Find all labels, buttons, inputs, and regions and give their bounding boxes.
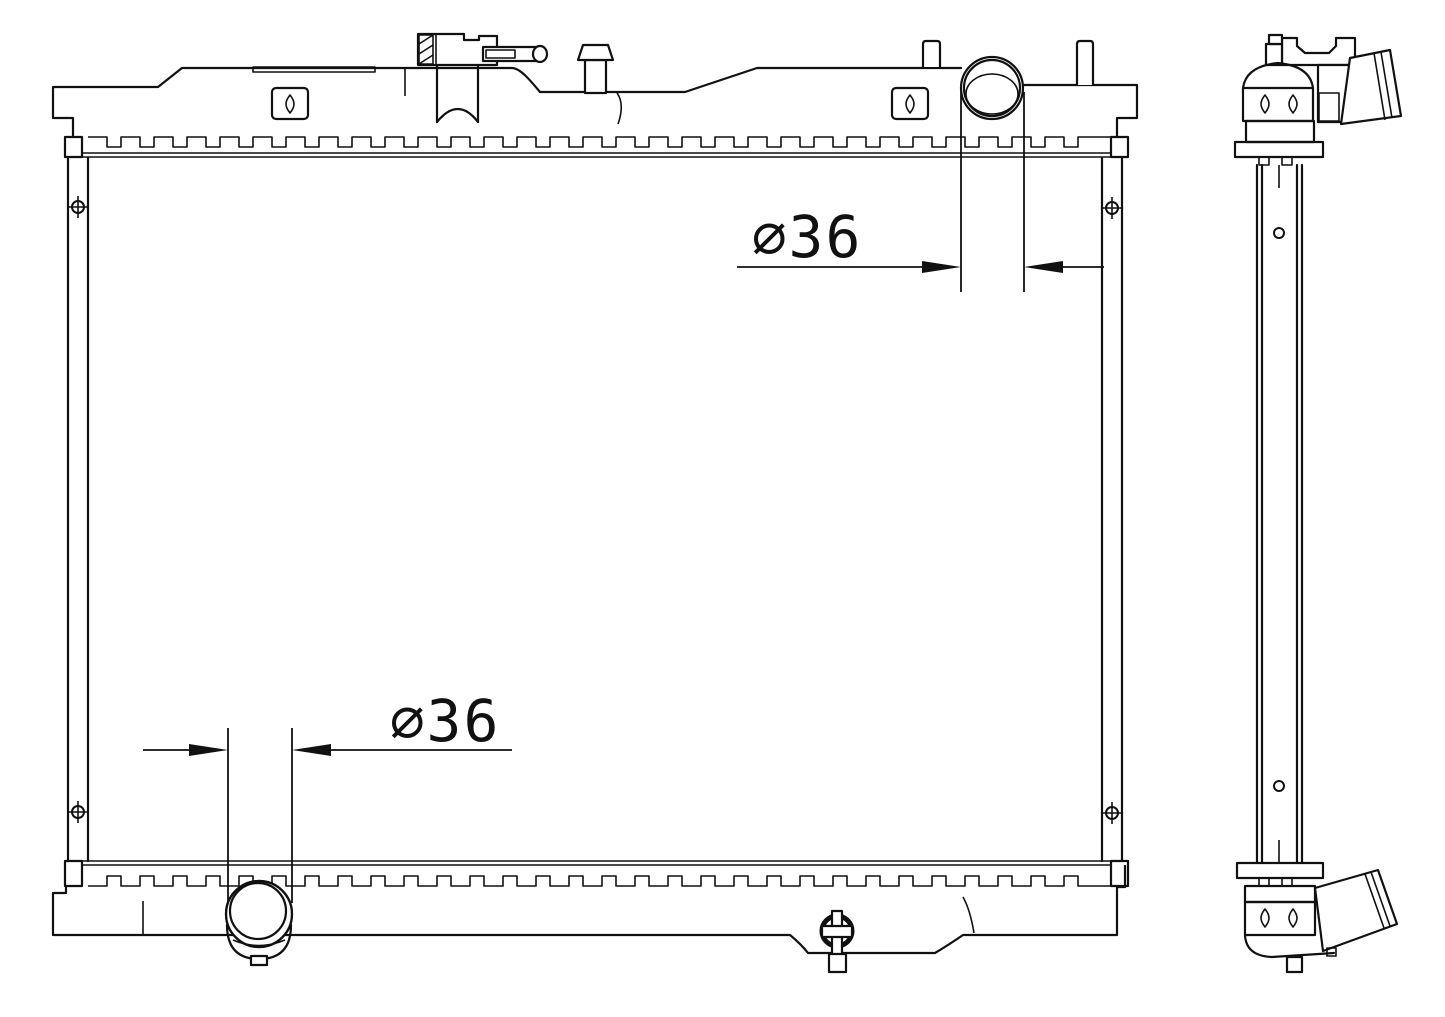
band-end-cap xyxy=(65,861,82,886)
radiator-technical-drawing: ⌀36 ⌀36 xyxy=(0,0,1445,1017)
side-bracket-bottom xyxy=(1245,902,1315,935)
side-bracket-upper xyxy=(1245,886,1315,902)
band-double-line xyxy=(81,861,1112,865)
drain-plug-wing-horizontal xyxy=(822,926,852,937)
vent-stub-cap xyxy=(578,45,613,60)
bottom-tank-curl xyxy=(963,897,974,933)
side-outlet-pipe xyxy=(1315,870,1397,951)
side-channel-left xyxy=(67,158,89,861)
side-bottom-foot xyxy=(1237,863,1323,878)
overflow-tube-end xyxy=(533,46,547,62)
diamond-hole xyxy=(1261,909,1269,927)
dimension-label-bottom: ⌀36 xyxy=(390,687,501,755)
outlet-pipe-opening xyxy=(226,881,292,965)
front-view xyxy=(53,34,1137,972)
side-top-foot xyxy=(1235,142,1323,157)
core-hole-upper xyxy=(1274,228,1284,238)
drain-outlet-stub xyxy=(829,954,846,972)
arrowhead xyxy=(922,261,961,273)
mounting-hole-crosshair xyxy=(1101,197,1123,219)
diamond-hole xyxy=(906,95,914,113)
tank-rib-flick xyxy=(617,93,621,124)
diamond-hole xyxy=(1289,95,1297,113)
overflow-tube xyxy=(483,47,539,61)
top-tab-right xyxy=(1077,41,1093,85)
dimensions: ⌀36 ⌀36 xyxy=(143,92,1104,903)
arrowhead xyxy=(1024,261,1063,273)
extension-lines xyxy=(961,92,1024,292)
vent-stub-neck xyxy=(585,60,606,93)
side-channel-right xyxy=(1101,158,1123,861)
band-end-cap xyxy=(65,137,82,157)
side-core-strip xyxy=(1257,165,1302,863)
side-inlet-pipe xyxy=(1341,50,1401,124)
inlet-pipe-opening xyxy=(961,57,1023,119)
arrowhead xyxy=(292,744,331,756)
side-top-block xyxy=(1266,44,1282,65)
mounting-pad-right xyxy=(892,88,928,119)
arrowhead xyxy=(189,744,228,756)
side-top-serration-wave xyxy=(1246,157,1314,165)
outlet-housing-tab xyxy=(251,956,267,965)
side-bottom-tank xyxy=(1237,863,1397,972)
front-bottom-serration-wave xyxy=(88,876,1110,886)
mounting-hole-crosshair xyxy=(67,801,89,823)
core-hole-lower xyxy=(1274,781,1284,791)
side-drain-stub xyxy=(1287,957,1302,972)
diamond-hole xyxy=(1289,909,1297,927)
front-top-serration-wave xyxy=(88,137,1110,147)
top-tab-left xyxy=(923,41,940,67)
mounting-hole-crosshair xyxy=(67,196,89,218)
mounting-pad-left xyxy=(272,88,308,119)
bottom-crimp-band xyxy=(65,861,1128,886)
drawing-sheet: ⌀36 ⌀36 xyxy=(0,0,1445,1017)
dimension-label-top: ⌀36 xyxy=(752,203,863,271)
side-bracket-top xyxy=(1243,88,1313,121)
dimension-bottom-outlet: ⌀36 xyxy=(143,687,512,903)
top-tank-outline-right xyxy=(1023,85,1137,137)
side-top-tank xyxy=(1235,35,1401,165)
top-crimp-band xyxy=(65,137,1128,157)
band-end-cap xyxy=(1111,137,1128,157)
side-top-block-small xyxy=(1269,35,1282,44)
vent-stub xyxy=(578,45,613,93)
side-top-plate xyxy=(1282,38,1355,65)
diamond-hole xyxy=(1261,95,1269,113)
side-bracket-lower xyxy=(1246,121,1314,142)
filler-neck-arch xyxy=(437,109,478,122)
top-tank-outline xyxy=(53,68,961,137)
side-bottom-serration-wave xyxy=(1246,878,1314,886)
top-tank-slot xyxy=(253,67,375,72)
side-dome xyxy=(1243,63,1313,88)
drain-plug xyxy=(822,911,852,972)
mounting-hole-crosshair xyxy=(1101,802,1123,824)
dimension-top-inlet: ⌀36 xyxy=(737,92,1104,292)
filler-neck-walls xyxy=(437,66,478,122)
diamond-hole xyxy=(286,95,294,113)
band-double-line xyxy=(81,153,1112,157)
side-view xyxy=(1235,35,1401,972)
